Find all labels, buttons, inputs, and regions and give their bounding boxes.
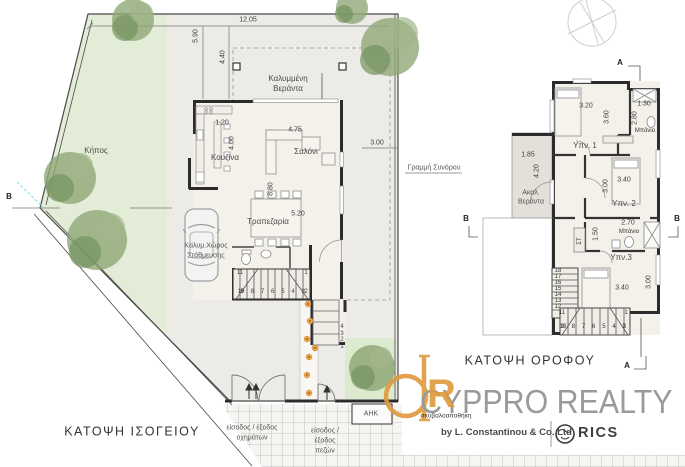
tree — [44, 152, 96, 204]
covered-veranda-label-2: Βεράντα — [273, 85, 303, 93]
open-veranda-label: Ακαλ. — [522, 189, 540, 196]
vehicle-entrance-label: είσοδος / έξοδος — [226, 424, 277, 431]
survey-line — [17, 182, 43, 207]
bedroom3-label: Υπν.3 — [610, 254, 632, 262]
tree — [112, 0, 154, 41]
rics-wordmark: RICS — [578, 425, 619, 441]
section-b-marker: B — [6, 193, 12, 201]
boundary-line-label: Γραμμή Συνόρου — [407, 164, 460, 171]
stair-num: 2 — [304, 289, 307, 295]
kitchen-label: Κουζίνα — [211, 154, 239, 162]
stair-num: 1 — [304, 270, 307, 276]
dim-2-70: 2.70 — [621, 219, 635, 226]
floor-plan-sheet: 12.05 5.90 4.40 Καλυμμένη Βεράντα 1.20 4… — [0, 0, 685, 467]
dim-8-80: 8.80 — [267, 182, 274, 196]
closet-label: ΣΤ — [577, 237, 583, 244]
section-a-marker-top: A — [617, 59, 623, 67]
column — [233, 63, 240, 70]
dim-5-90: 5.90 — [192, 29, 199, 43]
dim-1-20: 1.20 — [215, 119, 229, 126]
dim-2-80: 2.80 — [631, 111, 638, 125]
covered-veranda-label: Καλυμμένη — [268, 75, 307, 83]
dim-3-40-b: 3.40 — [615, 284, 629, 291]
pedestrian-entrance-label-2: έξοδος — [314, 437, 335, 444]
dim-1-50: 1.50 — [592, 227, 599, 241]
bathroom2-label: Μπάνιο — [619, 229, 639, 235]
stair-num: 1 — [624, 310, 627, 316]
dim-4-75: 4.75 — [288, 126, 302, 133]
stair-num: 11 — [237, 270, 243, 276]
dim-3-00: 3.00 — [370, 139, 384, 146]
garden-step-num: 1 — [340, 344, 343, 350]
dining-room-label: Τραπεζαρία — [247, 218, 289, 226]
dim-3-00-b: 3.00 — [645, 275, 652, 289]
dim-12-05: 12.05 — [239, 16, 257, 23]
garden-step-num: 2 — [340, 337, 343, 343]
bedroom2-label: Υπν. 2 — [612, 200, 636, 208]
compass-icon — [568, 0, 616, 46]
pedestrian-entrance-label: είσοδος / — [311, 427, 339, 434]
open-veranda-label-2: Βεράντα — [518, 198, 544, 205]
upper-floor-title: ΚΑΤΟΨΗ ΟΡΟΦΟΥ — [465, 354, 596, 367]
ground-floor-title: ΚΑΤΟΨΗ ΙΣΟΓΕΙΟΥ — [64, 425, 200, 438]
garden-steps — [313, 300, 339, 345]
dim-3-20: 3.20 — [579, 102, 593, 109]
garden-label: Κήπος — [84, 147, 108, 155]
brand-wordmark: CYPPRO REALTY — [420, 383, 673, 421]
dim-4-20: 4.20 — [533, 164, 540, 178]
bathroom1-label: Μπάνιο — [635, 128, 655, 134]
brand-monogram-r: R — [427, 372, 456, 417]
parking-label: Καλυμ.Χώρος — [184, 242, 227, 249]
stair-num: 2 — [622, 324, 625, 330]
brand-byline: by L. Constantinou & Co. Ltd — [441, 427, 572, 438]
ahk-label: ΑΗΚ — [364, 410, 378, 417]
dim-3-40-a: 3.40 — [617, 176, 631, 183]
dim-5-20: 5.20 — [291, 210, 305, 217]
dim-3-00-a: 3.00 — [602, 179, 609, 193]
stair-num-row: 9 8 7 6 5 4 3 — [561, 324, 628, 330]
parking-label-2: Στάθμευσης — [187, 252, 224, 259]
column — [339, 63, 346, 70]
dim-3-60: 3.60 — [603, 110, 610, 124]
section-b-marker-right: B — [674, 215, 680, 223]
dim-1-30: 1.30 — [637, 100, 651, 107]
roof-outline — [483, 218, 552, 335]
vehicle-entrance-label-2: οχημάτων — [237, 434, 268, 441]
dim-4-00: 4.00 — [228, 136, 235, 150]
stair-num: 11 — [559, 310, 565, 316]
pedestrian-entrance-label-3: πεζών — [315, 447, 335, 454]
section-a-marker-bottom: A — [624, 362, 630, 370]
tree — [67, 210, 127, 270]
garden-step-num: 4 — [340, 324, 343, 330]
stair-num-row: 9 8 7 6 5 4 3 — [240, 289, 307, 295]
living-room-label: Σαλόνι — [294, 148, 318, 156]
dim-4-40: 4.40 — [219, 50, 226, 64]
dim-1-85: 1.85 — [521, 151, 535, 158]
bedroom1-label: Υπν. 1 — [573, 142, 597, 150]
section-b-marker-left: B — [463, 215, 469, 223]
